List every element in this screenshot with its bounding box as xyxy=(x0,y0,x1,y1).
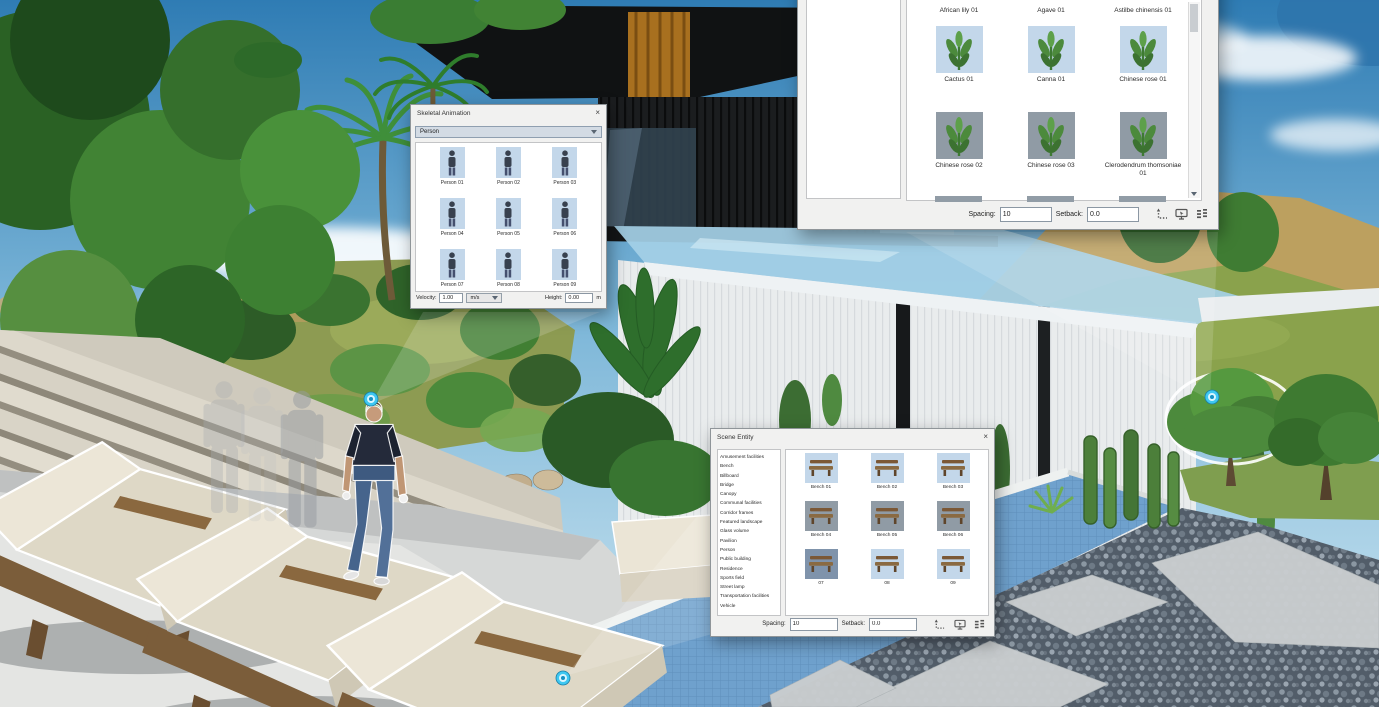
entity-item-label: 08 xyxy=(884,581,889,587)
partially-scrolled-thumbnail xyxy=(1119,196,1166,202)
application-window: Skeletal Animation × Person Person 01 xyxy=(0,0,1379,707)
person-icon xyxy=(558,252,572,278)
plant-icon xyxy=(942,116,976,156)
entity-thumbnail[interactable] xyxy=(937,453,970,483)
person-icon xyxy=(501,201,515,227)
entity-category-item[interactable]: Street lamp xyxy=(720,583,778,592)
plant-library-panel: African lily 01 Agave 01 xyxy=(797,0,1219,230)
person-library-item[interactable]: Person 09 xyxy=(552,249,577,288)
entity-item-label: Bench 06 xyxy=(943,533,963,539)
entity-item-label: 07 xyxy=(818,581,823,587)
person-item-label: Person 07 xyxy=(441,282,464,288)
person-library-item[interactable]: Person 05 xyxy=(496,198,521,237)
entity-thumbnail[interactable] xyxy=(937,549,970,579)
person-item-label: Person 06 xyxy=(553,231,576,237)
entity-category-item[interactable]: Transportation facilities xyxy=(720,592,778,601)
plant-library-item[interactable]: Chinese rose 03 xyxy=(1027,112,1074,170)
person-thumbnail[interactable] xyxy=(552,249,577,280)
entity-library-item[interactable]: Bench 03 xyxy=(937,453,970,491)
plant-icon xyxy=(1126,30,1160,70)
person-icon xyxy=(501,150,515,176)
person-thumbnail[interactable] xyxy=(496,147,521,178)
entity-category-item[interactable]: Amusement facilities xyxy=(720,453,778,462)
person-thumbnail[interactable] xyxy=(496,249,521,280)
distribute-grid-icon[interactable] xyxy=(1195,208,1208,221)
entity-category-item[interactable]: Public building xyxy=(720,555,778,564)
plant-category-list[interactable] xyxy=(806,0,901,199)
plant-item-label: Astilbe chinensis 01 xyxy=(1114,7,1171,15)
entity-category-item[interactable]: Featured landscape xyxy=(720,518,778,527)
entity-category-item[interactable]: Bench xyxy=(720,462,778,471)
setback-input[interactable] xyxy=(869,618,917,631)
close-icon[interactable]: × xyxy=(595,109,600,117)
person-thumbnail[interactable] xyxy=(440,147,465,178)
entity-category-item[interactable]: Bridge xyxy=(720,481,778,490)
plant-thumbnail-area: African lily 01 Agave 01 xyxy=(906,0,1202,201)
person-thumbnail-grid: Person 01 Person 02 xyxy=(415,142,602,292)
person-library-item[interactable]: Person 06 xyxy=(552,198,577,237)
entity-category-item[interactable]: Communal facilities xyxy=(720,499,778,508)
person-icon xyxy=(558,201,572,227)
skeletal-panel-titlebar[interactable]: Skeletal Animation × xyxy=(411,105,606,121)
person-library-item[interactable]: Person 02 xyxy=(496,147,521,186)
person-thumbnail[interactable] xyxy=(440,198,465,229)
bench-icon xyxy=(940,459,966,477)
entity-item-label: 09 xyxy=(950,581,955,587)
scroll-down-icon[interactable] xyxy=(1191,192,1197,196)
velocity-unit-value: m/s xyxy=(470,295,479,301)
entity-category-list: Amusement facilities Bench Billboard Bri… xyxy=(717,449,781,616)
category-dropdown[interactable]: Person xyxy=(415,126,602,138)
plant-library-item[interactable]: Cactus 01 xyxy=(936,26,983,84)
entity-category-item[interactable]: Billboard xyxy=(720,472,778,481)
plant-thumbnail[interactable] xyxy=(1028,26,1075,73)
bench-icon xyxy=(874,555,900,573)
plant-icon xyxy=(1034,116,1068,156)
velocity-unit-dropdown[interactable]: m/s xyxy=(466,293,502,303)
plant-library-item[interactable]: Chinese rose 01 xyxy=(1119,26,1166,84)
velocity-label: Velocity: xyxy=(416,295,436,301)
entity-thumbnail[interactable] xyxy=(805,549,838,579)
plant-thumbnail[interactable] xyxy=(936,26,983,73)
plant-item-label: African lily 01 xyxy=(940,7,979,15)
plant-item-label: Clerodendrum thomsoniae 01 xyxy=(1104,162,1182,178)
person-item-label: Person 03 xyxy=(553,180,576,186)
entity-thumbnail[interactable] xyxy=(871,453,904,483)
plant-library-item[interactable]: Clerodendrum thomsoniae 01 xyxy=(1104,112,1182,178)
spacing-label: Spacing: xyxy=(969,211,996,218)
scene-entity-title: Scene Entity xyxy=(717,434,754,441)
bench-icon xyxy=(940,507,966,525)
entity-thumbnail-grid: Bench 01 Bench 02 xyxy=(785,449,989,616)
person-icon xyxy=(445,150,459,176)
person-library-item[interactable]: Person 08 xyxy=(496,249,521,288)
plant-item-label: Chinese rose 01 xyxy=(1119,76,1166,84)
entity-thumbnail[interactable] xyxy=(871,501,904,531)
person-icon xyxy=(501,252,515,278)
entity-thumbnail[interactable] xyxy=(937,501,970,531)
bench-icon xyxy=(940,555,966,573)
height-input[interactable] xyxy=(565,293,593,303)
entity-library-item[interactable]: Bench 01 xyxy=(805,453,838,491)
entity-library-item[interactable]: Bench 06 xyxy=(937,501,970,539)
plant-library-item[interactable]: Chinese rose 02 xyxy=(935,112,982,170)
person-item-label: Person 04 xyxy=(441,231,464,237)
partially-scrolled-thumbnail xyxy=(935,196,982,202)
partially-scrolled-thumbnail xyxy=(1027,196,1074,202)
skeletal-panel-title: Skeletal Animation xyxy=(417,110,470,117)
entity-item-label: Bench 04 xyxy=(811,533,831,539)
chevron-down-icon xyxy=(591,130,597,134)
entity-category-item[interactable]: Sports field xyxy=(720,574,778,583)
scrollbar-thumb[interactable] xyxy=(1190,4,1198,32)
plant-thumbnail[interactable] xyxy=(1120,26,1167,73)
entity-item-label: Bench 03 xyxy=(943,485,963,491)
plant-item-label: Chinese rose 02 xyxy=(935,162,982,170)
setback-label: Setback: xyxy=(1056,211,1083,218)
plant-thumbnail-grid: African lily 01 Agave 01 xyxy=(907,0,1201,178)
entity-category-item[interactable]: Corridor frames xyxy=(720,509,778,518)
plant-icon xyxy=(1034,30,1068,70)
entity-category-item[interactable]: Glass volume xyxy=(720,527,778,536)
display-pick-icon[interactable] xyxy=(953,618,966,631)
plant-thumbnail[interactable] xyxy=(936,112,983,159)
skeletal-animation-panel: Skeletal Animation × Person Person 01 xyxy=(410,104,607,309)
plant-panel-footer: Spacing: Setback: xyxy=(969,205,1209,223)
person-library-item[interactable]: Person 01 xyxy=(440,147,465,186)
entity-category-item[interactable]: Pavilion xyxy=(720,537,778,546)
entity-item-label: Bench 05 xyxy=(877,533,897,539)
person-library-item[interactable]: Person 07 xyxy=(440,249,465,288)
person-thumbnail[interactable] xyxy=(496,198,521,229)
velocity-input[interactable] xyxy=(439,293,463,303)
person-item-label: Person 09 xyxy=(553,282,576,288)
person-thumbnail[interactable] xyxy=(552,147,577,178)
scene-entity-titlebar[interactable]: Scene Entity × xyxy=(711,429,994,445)
plant-item-label: Canna 01 xyxy=(1037,76,1065,84)
entity-category-item[interactable]: Residence xyxy=(720,565,778,574)
plant-item-label: Chinese rose 03 xyxy=(1027,162,1074,170)
entity-library-item[interactable]: Bench 04 xyxy=(805,501,838,539)
person-icon xyxy=(558,150,572,176)
entity-library-item[interactable]: Bench 05 xyxy=(871,501,904,539)
entity-item-label: Bench 01 xyxy=(811,485,831,491)
entity-thumbnail[interactable] xyxy=(871,549,904,579)
person-library-item[interactable]: Person 04 xyxy=(440,198,465,237)
plant-item-label: Agave 01 xyxy=(1037,7,1064,15)
entity-category-item[interactable]: Canopy xyxy=(720,490,778,499)
setback-label: Setback: xyxy=(842,621,865,627)
bench-icon xyxy=(808,507,834,525)
close-icon[interactable]: × xyxy=(983,433,988,441)
height-unit-label: m xyxy=(596,295,601,301)
plant-thumbnail[interactable] xyxy=(1120,112,1167,159)
person-thumbnail[interactable] xyxy=(552,198,577,229)
bench-icon xyxy=(874,507,900,525)
plant-library-item[interactable]: Agave 01 xyxy=(1037,4,1064,15)
person-library-item[interactable]: Person 03 xyxy=(552,147,577,186)
entity-thumbnail[interactable] xyxy=(805,453,838,483)
bench-icon xyxy=(874,459,900,477)
plant-library-item[interactable]: African lily 01 xyxy=(940,4,979,15)
entity-library-item[interactable]: 09 xyxy=(937,549,970,587)
height-label: Height: xyxy=(545,295,562,301)
skeletal-panel-footer: Velocity: m/s Height: m xyxy=(411,291,606,305)
person-item-label: Person 02 xyxy=(497,180,520,186)
display-pick-icon[interactable] xyxy=(1175,208,1188,221)
setback-input[interactable] xyxy=(1087,207,1139,222)
plant-icon xyxy=(942,30,976,70)
person-item-label: Person 01 xyxy=(441,180,464,186)
entity-category-item[interactable]: Vehicle xyxy=(720,602,778,611)
spacing-input[interactable] xyxy=(790,618,838,631)
plant-icon xyxy=(1126,116,1160,156)
entity-library-item[interactable]: Bench 02 xyxy=(871,453,904,491)
distribute-grid-icon[interactable] xyxy=(973,618,986,631)
entity-category-item[interactable]: Person xyxy=(720,546,778,555)
entity-thumbnail[interactable] xyxy=(805,501,838,531)
entity-library-item[interactable]: 08 xyxy=(871,549,904,587)
person-icon xyxy=(445,201,459,227)
person-item-label: Person 08 xyxy=(497,282,520,288)
person-icon xyxy=(445,252,459,278)
chevron-down-icon xyxy=(492,296,498,300)
entity-library-item[interactable]: 07 xyxy=(805,549,838,587)
plant-library-item[interactable]: Astilbe chinensis 01 xyxy=(1114,4,1171,15)
plant-thumbnail[interactable] xyxy=(1028,112,1075,159)
category-dropdown-value: Person xyxy=(420,129,439,135)
bench-icon xyxy=(808,555,834,573)
person-thumbnail[interactable] xyxy=(440,249,465,280)
plant-list-scrollbar[interactable] xyxy=(1188,2,1200,198)
dimension-line-icon[interactable] xyxy=(1155,208,1168,221)
plant-item-label: Cactus 01 xyxy=(944,76,973,84)
entity-item-label: Bench 02 xyxy=(877,485,897,491)
bench-icon xyxy=(808,459,834,477)
person-item-label: Person 05 xyxy=(497,231,520,237)
scene-entity-panel: Scene Entity × Amusement facilities Benc… xyxy=(710,428,995,637)
plant-library-item[interactable]: Canna 01 xyxy=(1028,26,1075,84)
dimension-line-icon[interactable] xyxy=(933,618,946,631)
spacing-label: Spacing: xyxy=(762,621,785,627)
spacing-input[interactable] xyxy=(1000,207,1052,222)
scene-entity-footer: Spacing: Setback: xyxy=(762,616,986,632)
